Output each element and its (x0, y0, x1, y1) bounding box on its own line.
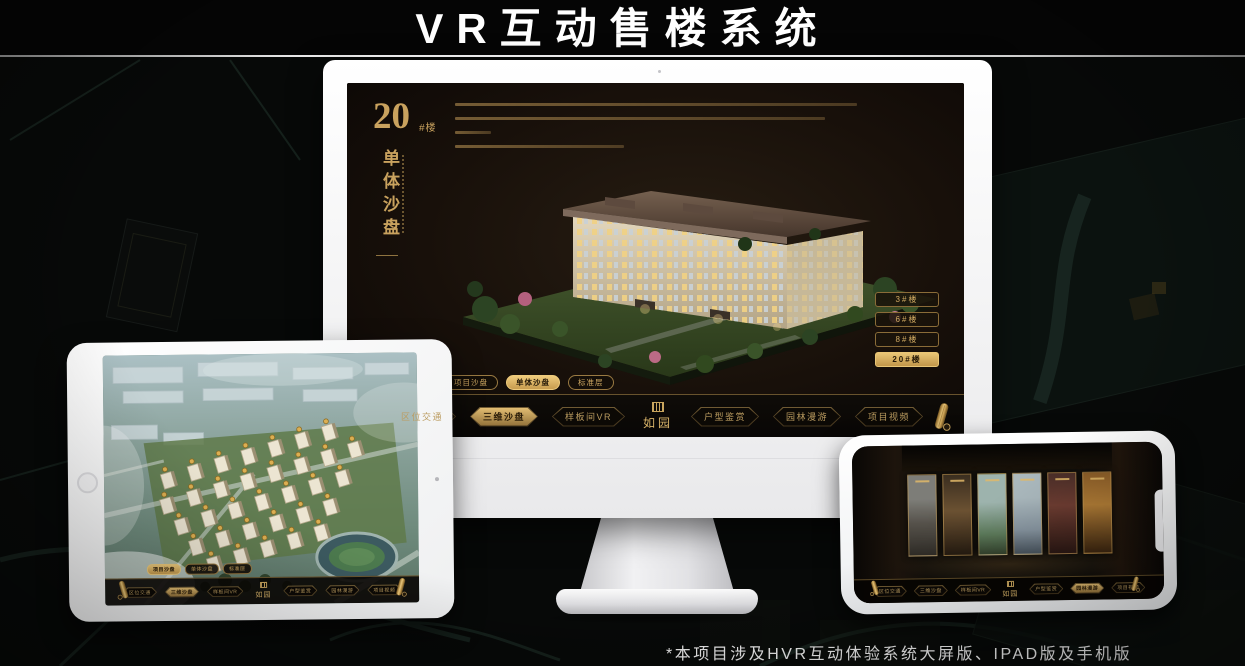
home-button[interactable] (77, 472, 98, 493)
tablet-screen: 项目沙盘 单体沙盘 标准层 区位交通 三维沙盘 样板间VR 如园 户型鉴赏 (103, 352, 420, 605)
description-line (455, 103, 857, 106)
nav-item-unit-gallery[interactable]: 户型鉴赏 (691, 407, 759, 427)
interior-ceiling-beam (902, 442, 1112, 471)
monitor-stand-base (556, 589, 758, 614)
nav-item-showroom-vr[interactable]: 样板间VR (552, 407, 625, 427)
tablet-nav-item-unit-gallery[interactable]: 户型鉴赏 (283, 585, 317, 596)
tablet-camera-dot (435, 477, 439, 481)
nav-item-3d-sandtable[interactable]: 三维沙盘 (470, 407, 538, 427)
seal-icon (260, 582, 267, 588)
building-number: 20 (373, 95, 410, 138)
monitor-stand-neck (580, 516, 734, 592)
description-line (455, 117, 825, 120)
floor-button-6[interactable]: 6#楼 (875, 312, 939, 327)
floor-button-group: 3#楼 6#楼 8#楼 20#楼 (875, 292, 939, 367)
tablet-nav-item-showroom-vr[interactable]: 样板间VR (207, 586, 244, 597)
nav-item-project-video[interactable]: 项目视频 (855, 407, 923, 427)
tablet-nav-item-garden-roam[interactable]: 园林漫游 (325, 584, 359, 595)
tablet-tab-project-sandtable[interactable]: 项目沙盘 (147, 564, 181, 575)
phone-nav-item-garden-roam[interactable]: 园林漫游 (1070, 582, 1104, 594)
phone-nav-item-3d-sandtable[interactable]: 三维沙盘 (914, 585, 948, 597)
vertical-title: 单体沙盘 (377, 149, 402, 241)
floor-button-3[interactable]: 3#楼 (875, 292, 939, 307)
title-underline (0, 55, 1245, 57)
tablet-navbar: 区位交通 三维沙盘 样板间VR 如园 户型鉴赏 园林漫游 项目视频 (105, 575, 419, 605)
building-model-illustration (455, 139, 947, 385)
webcam-dot (658, 70, 661, 73)
tablet-nav-item-3d-sandtable[interactable]: 三维沙盘 (165, 586, 199, 597)
seal-icon (652, 402, 664, 412)
gallery-panel-row (907, 471, 1112, 556)
page-title: VR互动售楼系统 (0, 0, 1245, 56)
tab-project-sandtable[interactable]: 项目沙盘 (444, 375, 498, 390)
gallery-panel[interactable] (1082, 471, 1112, 553)
scroll-icon[interactable] (115, 576, 132, 603)
seal-icon (1007, 580, 1014, 586)
gallery-panel[interactable] (942, 474, 972, 556)
floor-button-8[interactable]: 8#楼 (875, 332, 939, 347)
scroll-icon[interactable] (392, 573, 409, 600)
scroll-icon[interactable] (1128, 571, 1142, 597)
scroll-icon[interactable] (868, 575, 882, 601)
gallery-panel[interactable] (907, 474, 937, 556)
tab-standard-floor[interactable]: 标准层 (568, 375, 614, 390)
phone-brand-logo[interactable]: 如园 (1002, 580, 1018, 598)
phone-device: 区位交通 三维沙盘 样板间VR 如园 户型鉴赏 园林漫游 项目视频 (839, 430, 1178, 614)
headline-rule (376, 255, 398, 256)
phone-nav-item-unit-gallery[interactable]: 户型鉴赏 (1029, 583, 1063, 595)
gallery-panel[interactable] (1012, 472, 1042, 554)
phone-navbar: 区位交通 三维沙盘 样板间VR 如园 户型鉴赏 园林漫游 项目视频 (854, 575, 1164, 604)
scroll-icon[interactable] (929, 401, 954, 432)
vertical-title-caption (402, 155, 404, 233)
brand-logo[interactable]: 如园 (643, 402, 673, 431)
phone-screen: 区位交通 三维沙盘 样板间VR 如园 户型鉴赏 园林漫游 项目视频 (852, 442, 1164, 604)
description-line (455, 131, 491, 134)
nav-item-garden-roam[interactable]: 园林漫游 (773, 407, 841, 427)
phone-nav-item-showroom-vr[interactable]: 样板间VR (955, 584, 992, 596)
phone-notch (1154, 489, 1164, 551)
tablet-view-tab-group: 项目沙盘 单体沙盘 标准层 (147, 563, 252, 575)
gallery-panel[interactable] (977, 473, 1007, 555)
tablet-tab-standard-floor[interactable]: 标准层 (223, 563, 252, 574)
view-tab-group: 项目沙盘 单体沙盘 标准层 (444, 375, 614, 390)
gallery-panel[interactable] (1047, 472, 1077, 554)
page: VR互动售楼系统 20 #楼 单体沙盘 (0, 0, 1245, 666)
tablet-brand-logo[interactable]: 如园 (255, 582, 271, 600)
floor-button-20[interactable]: 20#楼 (875, 352, 939, 367)
building-number-suffix: #楼 (419, 119, 437, 134)
tab-single-sandtable[interactable]: 单体沙盘 (506, 375, 560, 390)
tablet-tab-single-sandtable[interactable]: 单体沙盘 (185, 563, 219, 574)
footnote-text: *本项目涉及HVR互动体验系统大屏版、IPAD版及手机版 (666, 640, 1132, 664)
tablet-device: 项目沙盘 单体沙盘 标准层 区位交通 三维沙盘 样板间VR 如园 户型鉴赏 (67, 339, 455, 622)
